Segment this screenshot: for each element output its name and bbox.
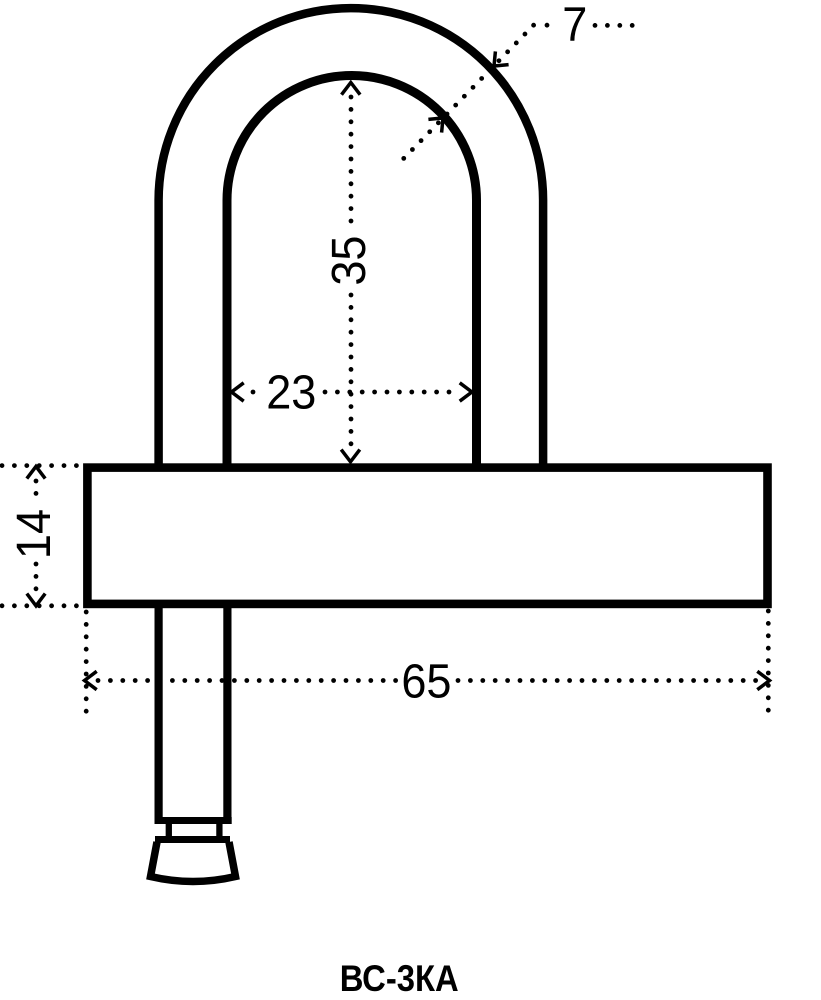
svg-text:14: 14 [6,509,60,559]
svg-text:35: 35 [321,236,375,286]
svg-text:ВС-3КА: ВС-3КА [340,958,459,1000]
svg-text:65: 65 [401,654,451,708]
svg-text:7: 7 [562,0,587,51]
svg-text:23: 23 [266,365,316,419]
